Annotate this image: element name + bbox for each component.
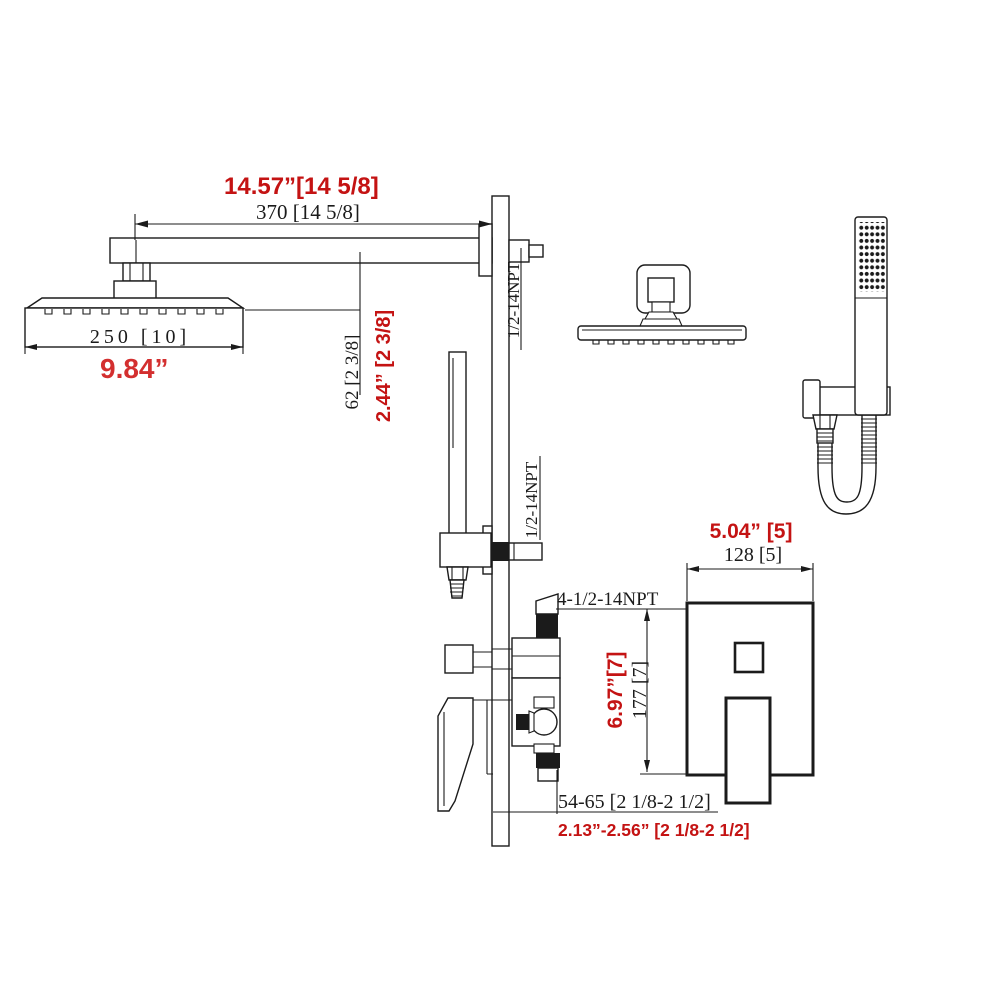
- outlet-hex-nut: [813, 415, 837, 429]
- dim-arm-length-metric: 370 [14 5/8]: [256, 200, 360, 224]
- cartridge-bottom: [534, 744, 554, 753]
- dim-arm-length-imperial: 14.57”[14 5/8]: [224, 173, 379, 200]
- dim-plate-width: 5.04” [5] 128 [5]: [687, 520, 813, 601]
- arrow-left: [687, 566, 699, 572]
- dim-arm-drop-imperial: 2.44” [2 3/8]: [373, 310, 395, 422]
- arrow-left: [135, 221, 148, 228]
- dim-plate-width-imperial: 5.04” [5]: [710, 520, 793, 543]
- arm-wall-nut: [509, 240, 529, 262]
- bottom-outlet-black-band: [536, 753, 560, 768]
- hose-thread-stub: [450, 580, 464, 598]
- valve-thread-text: 4-1/2-14NPT: [557, 589, 659, 610]
- cartridge-circle: [531, 709, 557, 735]
- arrow-right: [801, 566, 813, 572]
- hose-hex-nut: [447, 567, 468, 580]
- ball-joint-lower: [114, 281, 156, 299]
- diagram-svg: 14.57”[14 5/8] 370 [14 5/8] 62 [2 3/8] 2…: [0, 0, 1000, 1000]
- arm-wall-flange: [479, 224, 492, 276]
- valve-front-view: [687, 603, 813, 803]
- top-inlet-black-band: [536, 614, 558, 638]
- cartridge-top: [534, 697, 554, 708]
- valve-thread-label: 4-1/2-14NPT: [556, 589, 687, 610]
- dim-plate-height-metric: 177 [7]: [629, 661, 651, 719]
- cartridge-black-nut: [516, 714, 529, 730]
- arrow-bottom: [644, 760, 650, 772]
- mount-stem: [652, 302, 670, 312]
- handle-mount-lines: [473, 700, 513, 774]
- swivel-collar-lower: [640, 319, 682, 326]
- swivel-collar-upper: [645, 312, 677, 319]
- shower-head-slab: [578, 326, 746, 340]
- diverter-button: [735, 643, 763, 672]
- hose-left-coils: [817, 447, 833, 463]
- holder-block: [440, 533, 491, 567]
- mount-block: [648, 278, 674, 302]
- dim-head-width-metric: 250 [10]: [90, 326, 190, 348]
- hose-loop-outer: [818, 467, 876, 514]
- hose-loop-inner: [832, 467, 862, 502]
- holder-plate: [803, 380, 820, 418]
- rain-shower-front-view: [578, 265, 746, 344]
- dim-arm-drop: 62 [2 3/8] 2.44” [2 3/8]: [245, 252, 395, 422]
- hand-shower-thread-label: 1/2-14NPT: [522, 456, 541, 540]
- dim-valve-depth-imperial: 2.13”-2.56” [2 1/8-2 1/2]: [558, 820, 750, 840]
- arm-nipple: [529, 245, 543, 257]
- bottom-outlet-pipe: [538, 768, 558, 781]
- dim-valve-depth: 54-65 [2 1/8-2 1/2] 2.13”-2.56” [2 1/8-2…: [493, 770, 750, 840]
- dim-plate-height: 177 [7] 6.97”[7]: [604, 609, 687, 774]
- arm-thread-text: 1/2-14NPT: [504, 261, 523, 338]
- top-inlet-pipe: [536, 594, 558, 614]
- dim-plate-width-metric: 128 [5]: [724, 544, 782, 566]
- hand-shower-thread-text: 1/2-14NPT: [522, 461, 541, 538]
- arm-thread-label: 1/2-14NPT: [504, 248, 523, 350]
- cartridge-link: [529, 711, 534, 733]
- shower-arm: [110, 238, 492, 263]
- valve-body-upper: [512, 638, 560, 678]
- arrow-top: [644, 609, 650, 621]
- dim-valve-depth-metric: 54-65 [2 1/8-2 1/2]: [558, 791, 711, 813]
- valve-handle-front: [726, 698, 770, 803]
- valve-handle-side: [438, 698, 473, 811]
- hose-right-coils: [861, 419, 877, 463]
- dimension-diagram: 14.57”[14 5/8] 370 [14 5/8] 62 [2 3/8] 2…: [0, 0, 1000, 1000]
- dim-arm-length: 14.57”[14 5/8] 370 [14 5/8]: [135, 173, 492, 240]
- dim-arm-drop-metric: 62 [2 3/8]: [342, 335, 363, 410]
- wall-connector-black: [492, 542, 509, 561]
- dim-head-width-imperial: 9.84”: [100, 353, 169, 384]
- spray-face-dots: [858, 222, 885, 292]
- shower-head-bevel: [27, 298, 243, 308]
- hand-shower-wand-side: [449, 352, 466, 535]
- dim-plate-height-imperial: 6.97”[7]: [604, 651, 627, 728]
- ball-joint-upper: [123, 263, 150, 281]
- dim-line-128: [687, 563, 813, 601]
- knob-stem: [473, 652, 492, 667]
- valve-side-view: [438, 594, 560, 811]
- hand-shower-front-view: [803, 217, 890, 514]
- diverter-knob: [445, 645, 473, 673]
